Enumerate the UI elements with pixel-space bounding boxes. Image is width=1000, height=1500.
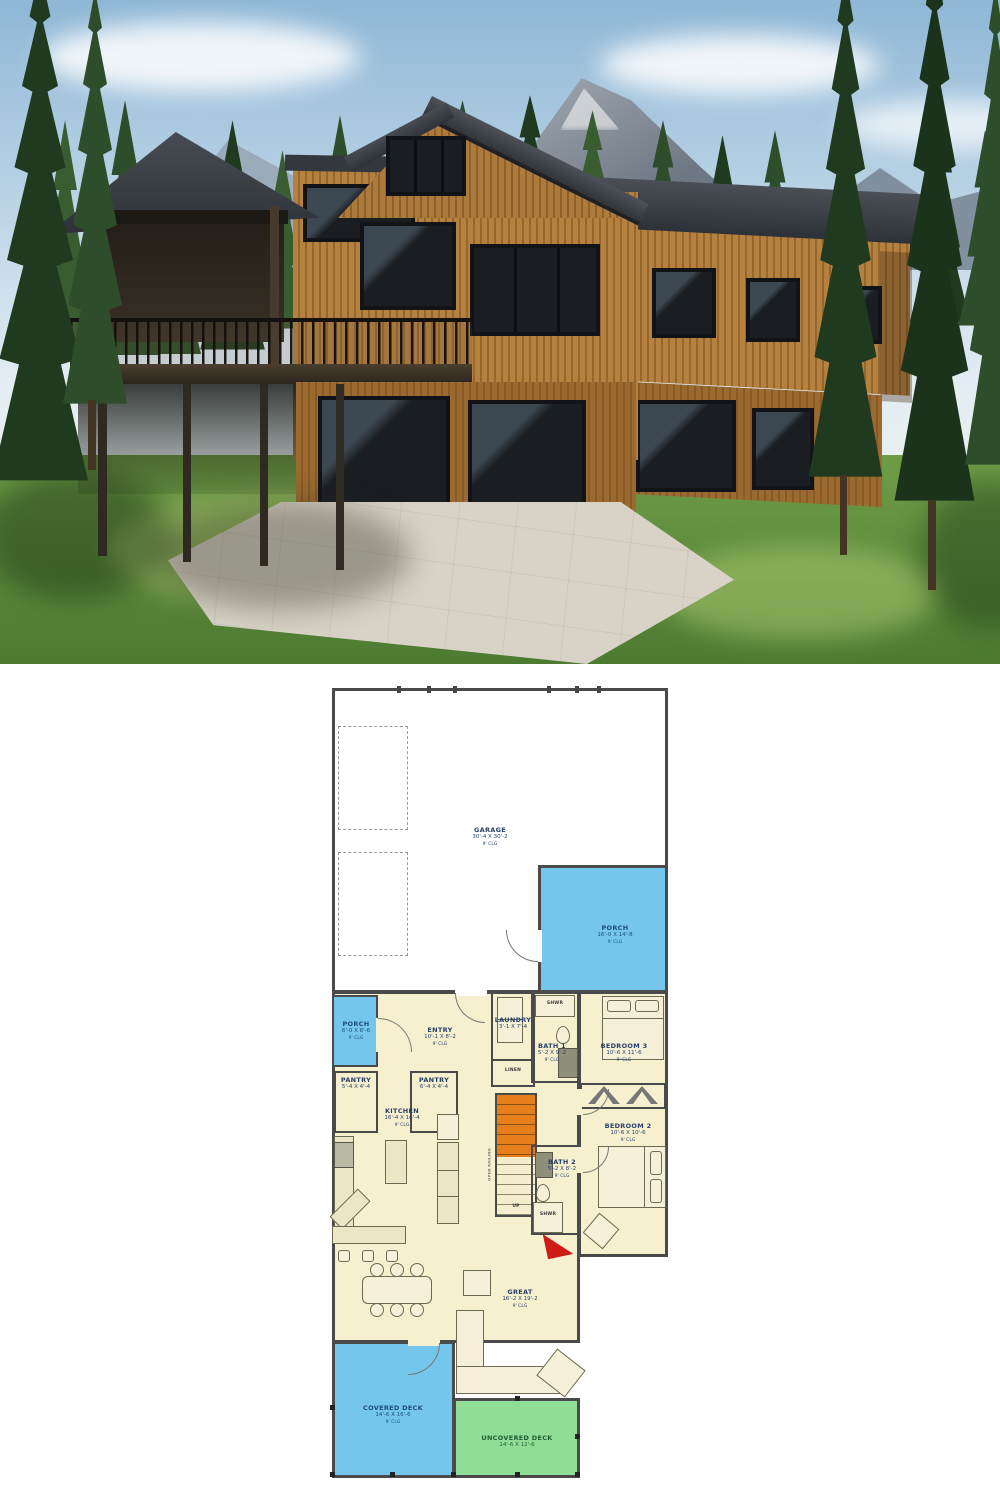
right-wing-shade: [880, 251, 912, 403]
bar-stool: [386, 1250, 398, 1262]
shower-bath1: [535, 995, 575, 1017]
room-label-covered-deck: COVERED DECK 14'-6 X 16'-6 9' CLG: [363, 1404, 423, 1425]
label-shwr-bath2: SHWR: [540, 1212, 556, 1217]
label-open-railing: OPEN RAILING: [487, 1148, 492, 1181]
room-label-bedroom2: BEDROOM 2 10'-6 X 10'-6 9' CLG: [605, 1122, 652, 1143]
room-label-porch-front: PORCH 6'-0 X 8'-6 9' CLG: [342, 1020, 370, 1041]
dining-chair: [390, 1263, 404, 1277]
door-opening: [576, 1089, 582, 1115]
garage-dashed-bay: [338, 852, 408, 956]
gable-window: [386, 136, 466, 196]
closet-linen: [491, 1059, 535, 1087]
label-shwr-bath1: SHWR: [547, 1001, 563, 1006]
dining-chair: [370, 1303, 384, 1317]
counter-divider: [437, 1196, 459, 1197]
pillow: [650, 1151, 662, 1175]
staircase-upper-treads: [497, 1095, 535, 1157]
window: [752, 408, 814, 490]
room-label-garage: GARAGE 30'-4 X 30'-2 9' CLG: [472, 826, 507, 847]
room-label-laundry: LAUNDRY 3'-1 X 7'-4: [495, 1016, 532, 1032]
tree-trunk: [928, 500, 936, 590]
pillow: [635, 1000, 659, 1012]
porch-header: [92, 210, 288, 224]
room-label-uncovered-deck: UNCOVERED DECK 14'-6 X 12'-6: [481, 1434, 552, 1450]
pillow: [650, 1179, 662, 1203]
deck-post: [183, 384, 191, 562]
tree-trunk: [88, 400, 96, 470]
blanket-line: [602, 1018, 664, 1019]
toilet-bath2: [536, 1184, 550, 1202]
deck-post: [98, 384, 107, 556]
deck-post: [260, 384, 268, 566]
garage-dashed-bay: [338, 726, 408, 830]
window: [468, 400, 586, 506]
deck-fascia: [70, 364, 472, 384]
kitchen-counter-right: [437, 1142, 459, 1224]
room-label-bath2: BATH 2 5'-2 X 8'-2 9' CLG: [548, 1158, 576, 1179]
wall-tick: [427, 686, 431, 693]
deck-railing: [70, 318, 472, 370]
dining-table: [362, 1276, 432, 1304]
room-label-porch-rear: PORCH 16'-0 X 14'-8 9' CLG: [597, 924, 632, 945]
deck-post-marker: [515, 1472, 520, 1477]
window: [636, 400, 736, 492]
deck-post-marker: [515, 1396, 520, 1401]
houseplan-pin: GARAGE 30'-4 X 30'-2 9' CLG PORCH 16'-0 …: [0, 0, 1000, 1500]
room-label-pantry-right: PANTRY 6'-4 X 4'-4: [419, 1076, 449, 1092]
bar-stool: [362, 1250, 374, 1262]
wall-tick: [453, 686, 457, 693]
bar-stool: [338, 1250, 350, 1262]
room-label-kitchen: KITCHEN 16'-4 X 16'-4 9' CLG: [384, 1107, 419, 1128]
kitchen-island: [385, 1140, 407, 1184]
window: [360, 222, 456, 310]
tree-trunk: [840, 475, 847, 555]
range: [334, 1142, 354, 1168]
door-opening: [576, 1147, 582, 1173]
wall-tick: [547, 686, 551, 693]
window: [652, 268, 716, 338]
shower-bath2: [533, 1202, 563, 1233]
dining-chair: [410, 1303, 424, 1317]
room-label-bath1: BATH 1 5'-2 X 9'-2 9' CLG: [538, 1042, 566, 1063]
room-label-great: GREAT 16'-2 X 19'-2 9' CLG: [502, 1288, 537, 1309]
deck-post-marker: [330, 1472, 335, 1477]
deck-post-marker: [330, 1405, 335, 1410]
room-label-bedroom3: BEDROOM 3 10'-6 X 11'-6 9' CLG: [601, 1042, 648, 1063]
deck-post-marker: [390, 1472, 395, 1477]
dining-chair: [370, 1263, 384, 1277]
dining-chair: [390, 1303, 404, 1317]
window: [746, 278, 800, 342]
label-up: UP: [512, 1204, 519, 1209]
blanket-line: [644, 1146, 645, 1208]
media-cabinet: [463, 1270, 491, 1296]
pillow: [607, 1000, 631, 1012]
kitchen-bar: [332, 1226, 406, 1244]
wall-tick: [575, 686, 579, 693]
dining-chair: [410, 1263, 424, 1277]
room-label-pantry-left: PANTRY 5'-4 X 4'-4: [341, 1076, 371, 1092]
wall-tick: [597, 686, 601, 693]
room-label-entry: ENTRY 10'-1 X 8'-2 9' CLG: [424, 1026, 456, 1047]
wall-tick: [397, 686, 401, 693]
deck-post-marker: [451, 1472, 456, 1477]
window: [470, 244, 600, 336]
counter-divider: [437, 1170, 459, 1171]
exterior-photo: [0, 0, 1000, 664]
deck-post-marker: [575, 1472, 580, 1477]
refrigerator: [437, 1114, 459, 1140]
deck-post: [336, 384, 344, 570]
label-linen: LINEN: [505, 1068, 521, 1073]
deck-post-marker: [575, 1434, 580, 1439]
